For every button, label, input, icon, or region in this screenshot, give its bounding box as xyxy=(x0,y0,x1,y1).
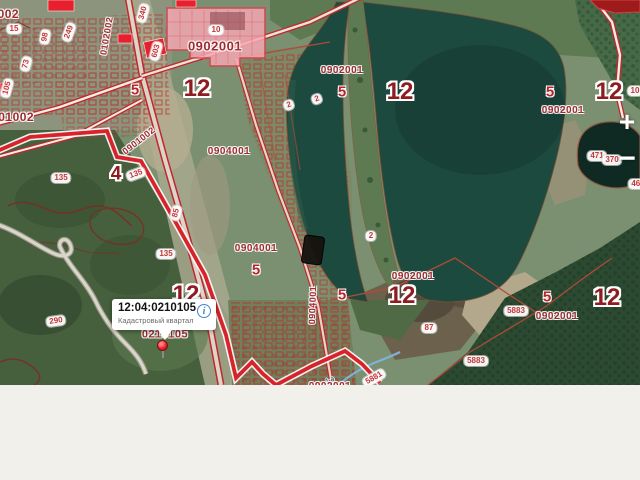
map-artwork xyxy=(0,0,640,385)
map-canvas[interactable]: 0902002159824934060373105090100201020021… xyxy=(0,0,640,385)
pin-head xyxy=(157,340,168,351)
selected-parcel[interactable] xyxy=(301,235,325,266)
bottom-bar: rosndv.ru xyxy=(0,385,640,480)
map-pin[interactable] xyxy=(157,340,169,352)
info-icon[interactable]: i xyxy=(197,304,211,318)
screenshot: 0902002159824934060373105090100201020021… xyxy=(0,0,640,480)
pin-stem xyxy=(162,350,164,358)
zoom-out-button[interactable]: − xyxy=(612,142,640,176)
cadastral-popup: 12:04:0210105 Кадастровый квартал i xyxy=(112,299,216,330)
popup-subtitle: Кадастровый квартал xyxy=(118,316,212,325)
zoom-in-button[interactable]: + xyxy=(612,106,640,138)
